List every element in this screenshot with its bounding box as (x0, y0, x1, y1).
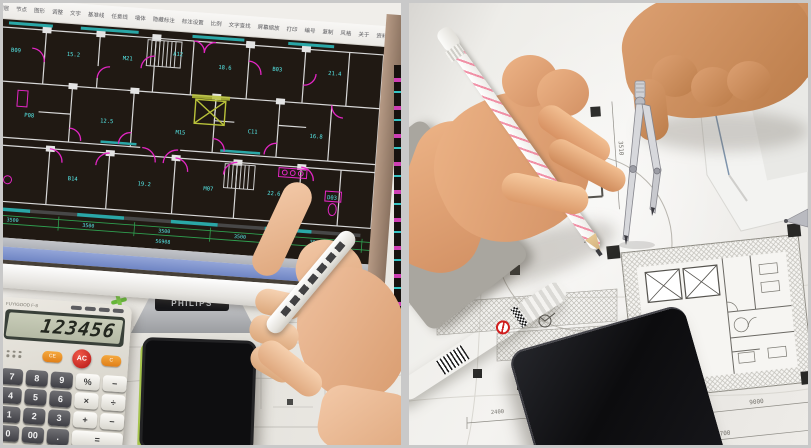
svg-text:15.2: 15.2 (67, 52, 81, 59)
cad-menu-item: 屏幕缩放 (257, 23, 280, 33)
mini-key (99, 307, 110, 312)
num-key: 1 (3, 406, 21, 423)
num-key: 00 (21, 426, 44, 443)
cad-stairs (138, 40, 264, 190)
num-key: 3 (48, 409, 71, 426)
cad-menu-item: 调整 (52, 8, 64, 17)
left-photo-panel: PHILIPS 图层 节点 图形 调整 文字 基准线 任意线 墙体 隐藏标注 标… (3, 3, 401, 445)
cad-menu-item: 基准线 (88, 10, 105, 19)
svg-text:B03: B03 (272, 67, 282, 74)
svg-text:B14: B14 (68, 176, 79, 183)
svg-text:56908: 56908 (155, 239, 170, 246)
ce-key: CE (42, 350, 63, 362)
svg-text:12.5: 12.5 (100, 118, 114, 125)
svg-text:M21: M21 (122, 56, 132, 63)
svg-text:M07: M07 (203, 186, 213, 193)
svg-text:3500: 3500 (6, 217, 18, 224)
ac-key: AC (72, 348, 92, 368)
svg-text:22.6: 22.6 (267, 191, 281, 198)
op-key: + (73, 411, 98, 429)
smartphone (139, 337, 257, 445)
speaker-dot (7, 350, 10, 353)
svg-text:19.2: 19.2 (137, 181, 151, 188)
speaker-dot (12, 355, 15, 358)
photo-frame: PHILIPS 图层 节点 图形 调整 文字 基准线 任意线 墙体 隐藏标注 标… (0, 0, 811, 448)
num-key: 4 (3, 387, 22, 404)
cad-menu-item: 文字查找 (228, 20, 251, 30)
svg-text:B09: B09 (11, 48, 21, 55)
cad-menu-item: 复制 (322, 27, 334, 36)
marker-red-logo (493, 318, 512, 337)
calculator-function-row: CE AC C (3, 343, 123, 371)
num-key: 8 (25, 370, 48, 387)
cad-menu-item: 节点 (16, 5, 28, 14)
calculator-display: 123456 (4, 309, 126, 347)
svg-text:3510: 3510 (617, 141, 625, 156)
cad-menu-item: 图层 (3, 4, 9, 13)
cad-menu-item: 风格 (340, 29, 352, 38)
cad-menu-item: 图形 (34, 6, 46, 15)
svg-text:P08: P08 (24, 113, 34, 120)
num-key: . (46, 428, 69, 445)
cad-menu-item: 文字 (70, 9, 82, 18)
second-monitor-sliver (394, 65, 401, 315)
cad-elevator (190, 94, 230, 126)
num-key: 9 (50, 371, 73, 388)
op-key: − (99, 413, 124, 431)
calculator-lcd-value: 123456 (5, 312, 123, 344)
speaker-dot (18, 355, 21, 358)
calculator: FUYIGOOD F-8 123456 CE AC C 7 8 9 (3, 297, 132, 445)
c-key: C (101, 354, 122, 366)
cad-menu-item: 标注设置 (181, 17, 204, 27)
svg-text:A12: A12 (173, 52, 183, 59)
svg-text:9000: 9000 (749, 398, 764, 407)
fist-knuckle (727, 61, 771, 101)
cad-menu-item: 隐藏标注 (153, 15, 176, 25)
op-key: − (102, 375, 127, 393)
svg-text:3500: 3500 (234, 234, 246, 241)
cad-wall-piers (34, 26, 315, 171)
svg-text:D03: D03 (327, 195, 337, 202)
num-key: 5 (24, 389, 47, 406)
calculator-keypad: 7 8 9 % − 4 5 6 × ÷ 1 2 3 + − 0 00 . = (3, 368, 121, 445)
speaker-grille (6, 350, 32, 359)
speaker-dot (13, 350, 16, 353)
cad-menu-item: 比例 (210, 19, 222, 28)
cad-menu-item: 打印 (286, 25, 298, 34)
svg-text:3500: 3500 (158, 228, 170, 235)
speaker-dot (19, 350, 22, 353)
cad-menu-item: 任意线 (111, 12, 128, 21)
svg-text:C11: C11 (247, 129, 257, 136)
cad-floorplan: B09 15.2 M21 A12 18.6 B03 21.4 P08 12.5 … (3, 18, 400, 266)
mini-key (71, 306, 82, 311)
cad-menu-item: 墙体 (135, 14, 147, 23)
cad-menu-item: 编号 (304, 26, 316, 35)
speaker-dot (6, 354, 9, 357)
op-key: × (74, 392, 99, 410)
cad-screen: B09 15.2 M21 A12 18.6 B03 21.4 P08 12.5 … (3, 18, 400, 266)
svg-text:18.6: 18.6 (218, 65, 232, 72)
svg-text:16.8: 16.8 (309, 134, 323, 141)
equals-key: = (71, 430, 123, 445)
svg-text:3500: 3500 (82, 223, 94, 230)
cad-menu-item: 关于 (358, 30, 370, 39)
mini-key (113, 308, 124, 313)
svg-text:M15: M15 (175, 130, 185, 137)
svg-text:2400: 2400 (491, 409, 505, 416)
op-key: ÷ (101, 394, 126, 412)
num-key: 0 (3, 425, 19, 442)
mini-key (85, 307, 96, 312)
cad-teal-accents (3, 21, 334, 159)
op-key: % (75, 373, 100, 391)
svg-text:21.4: 21.4 (328, 71, 342, 78)
num-key: 6 (49, 390, 72, 407)
right-photo-panel: 3510 (409, 3, 808, 445)
num-key: 2 (23, 407, 46, 424)
num-key: 7 (3, 368, 23, 385)
